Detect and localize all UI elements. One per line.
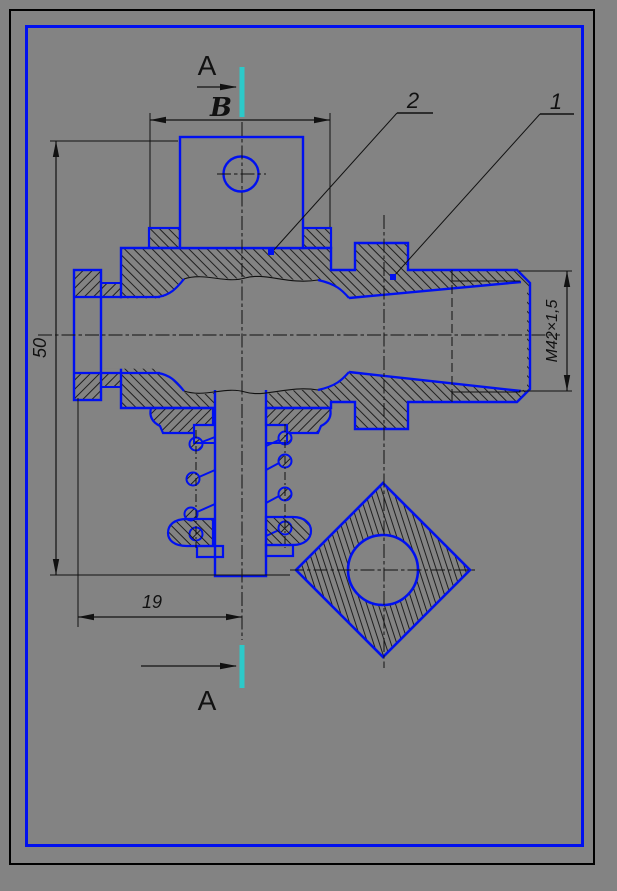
section-letter-bottom: A: [198, 685, 217, 716]
leader-endpoint: [390, 274, 396, 280]
coil-wire: [266, 463, 279, 470]
inner-frame-border: [27, 27, 583, 846]
bonnet-flange-left: [150, 408, 213, 433]
arrowhead: [564, 271, 570, 287]
section-letter-top: A: [198, 50, 217, 81]
arrowhead: [220, 663, 237, 670]
cut-plane-line-top: [240, 67, 245, 117]
callout-part-1[interactable]: 1: [390, 89, 574, 280]
leader-endpoint: [268, 249, 274, 255]
retainer-nut-right: [266, 545, 293, 556]
drawing-canvas[interactable]: A A В 50 19 M42×1,5: [0, 0, 617, 891]
leader-line: [394, 114, 540, 276]
spring-retainer-left: [168, 519, 213, 546]
arrowhead: [78, 614, 94, 620]
coil-wire: [202, 437, 215, 442]
coil-section: [187, 473, 200, 486]
inlet-cap-wall-top: [74, 270, 101, 297]
bonnet-flange-right: [266, 408, 331, 433]
section-marker-bottom[interactable]: A: [141, 645, 245, 716]
drawing-sheet: A A В 50 19 M42×1,5: [0, 0, 617, 891]
arrowhead: [53, 141, 59, 157]
callout-number-1: 1: [550, 89, 562, 114]
callout-number-2: 2: [406, 88, 419, 113]
coil-wire: [197, 504, 215, 512]
bonnet-flange-lip-left: [149, 228, 180, 248]
main-section-view[interactable]: [74, 137, 530, 576]
arrowhead: [53, 559, 59, 575]
arrowhead: [314, 117, 330, 123]
inlet-cap-wall-bottom: [74, 373, 101, 400]
dimension-text-50: 50: [30, 338, 50, 358]
arrowhead: [564, 375, 570, 391]
arrowhead: [226, 614, 242, 620]
cut-plane-line-bottom: [240, 645, 245, 688]
arrowhead: [150, 117, 166, 123]
coil-wire: [199, 470, 215, 477]
inlet-neck-wall-top: [101, 283, 121, 297]
coil-wire: [266, 496, 279, 503]
inlet-neck-wall-bottom: [101, 373, 121, 387]
spring-retainer-right: [266, 517, 311, 545]
dimension-text-width-var: В: [209, 93, 232, 123]
bonnet-flange-lip-right: [302, 228, 331, 248]
arrowhead: [220, 84, 237, 91]
dimension-text-19: 19: [142, 592, 162, 612]
dimension-text-thread: M42×1,5: [544, 300, 561, 363]
